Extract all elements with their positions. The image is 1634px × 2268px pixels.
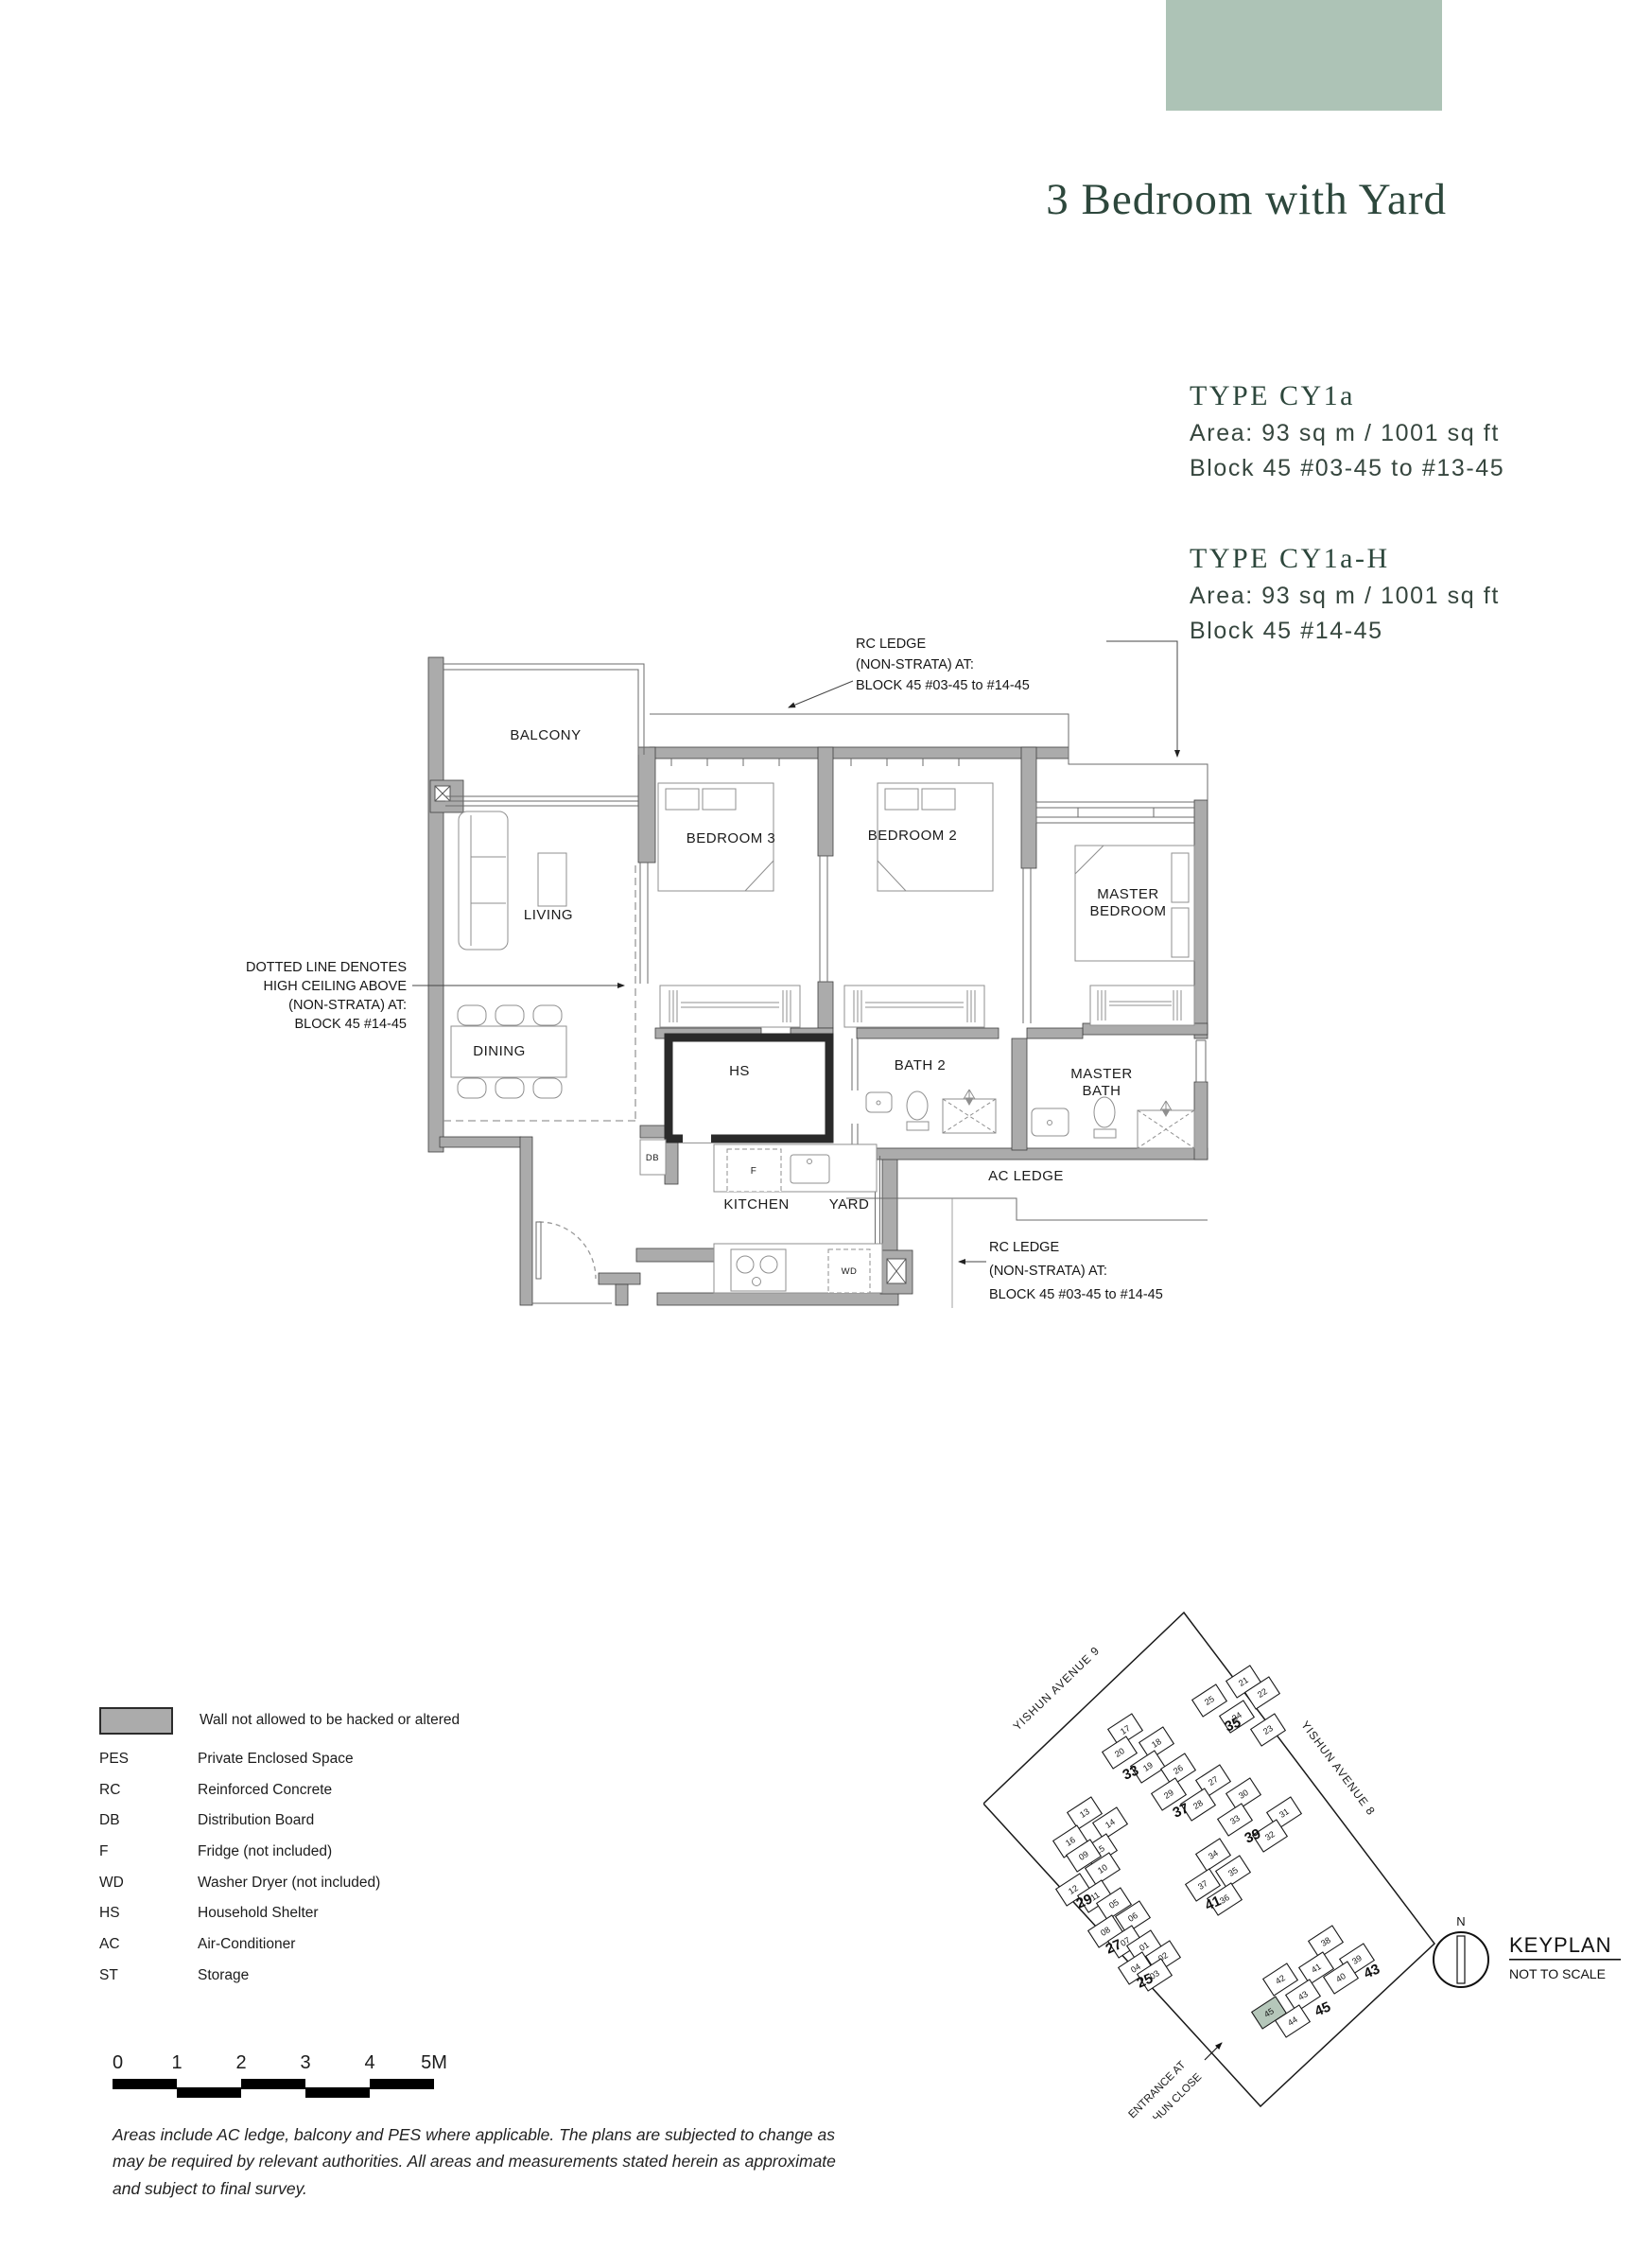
label-master-bath: BATH — [1083, 1083, 1121, 1099]
keyplan-unit-38: 38 — [1309, 1926, 1344, 1958]
scale-segment — [305, 2087, 370, 2098]
keyplan-subtitle: NOT TO SCALE — [1509, 1966, 1606, 1981]
sofa — [459, 811, 508, 950]
legend-key: PES — [99, 1751, 198, 1768]
legend-desc: Private Enclosed Space — [198, 1751, 354, 1768]
legend-row: STStorage — [99, 1967, 460, 1998]
keyplan-cluster-41: 3435373641 — [1186, 1839, 1251, 1915]
legend-desc: Reinforced Concrete — [198, 1782, 332, 1799]
wardrobe-master — [1090, 986, 1194, 1025]
keyplan-block-label-45: 45 — [1312, 1998, 1333, 2019]
floor-plan: BALCONY LIVING DINING BEDROOM 3 BEDROOM … — [227, 577, 1267, 1362]
legend-desc: Washer Dryer (not included) — [198, 1875, 380, 1892]
keyplan-cluster-35: 212225242335 — [1192, 1666, 1286, 1746]
scale-label: 1 — [171, 2052, 182, 2074]
keyplan-title-block: KEYPLAN NOT TO SCALE — [1509, 1933, 1621, 1981]
legend-row: DBDistribution Board — [99, 1812, 460, 1843]
scale-segment — [241, 2079, 305, 2089]
compass: N — [1434, 1914, 1488, 1987]
legend-row: PESPrivate Enclosed Space — [99, 1751, 460, 1782]
label-db: DB — [646, 1153, 659, 1163]
label-bedroom3: BEDROOM 3 — [687, 830, 776, 846]
svg-text:(NON-STRATA) AT:: (NON-STRATA) AT: — [989, 1264, 1107, 1279]
keyplan-unit-23: 23 — [1251, 1714, 1286, 1746]
label-master-bath: MASTER — [1070, 1066, 1133, 1082]
page-title: 3 Bedroom with Yard — [1046, 174, 1447, 225]
svg-text:RC LEDGE: RC LEDGE — [989, 1240, 1059, 1255]
keyplan-unit-30: 30 — [1226, 1778, 1261, 1810]
svg-text:BLOCK 45 #14-45: BLOCK 45 #14-45 — [295, 1017, 408, 1032]
svg-text:(NON-STRATA) AT:: (NON-STRATA) AT: — [856, 657, 974, 672]
scale-bar: 0 1 2 3 4 5M — [113, 2052, 453, 2105]
entry-door-leaf — [536, 1222, 541, 1279]
legend-key: ST — [99, 1967, 198, 1984]
street-label-yishun-ave-9: YISHUN AVENUE 9 — [1011, 1644, 1103, 1733]
label-bedroom2: BEDROOM 2 — [868, 828, 958, 844]
page: 3 Bedroom with Yard TYPE CY1a Area: 93 s… — [0, 0, 1634, 2268]
label-yard: YARD — [829, 1196, 870, 1213]
legend-key: HS — [99, 1905, 198, 1922]
label-ac-ledge: AC LEDGE — [988, 1168, 1064, 1184]
accent-rectangle — [1166, 0, 1442, 111]
legend-desc: Storage — [198, 1967, 249, 1984]
street-label-yishun-ave-8: YISHUN AVENUE 8 — [1298, 1718, 1378, 1818]
legend: Wall not allowed to be hacked or altered… — [99, 1706, 460, 1998]
keyplan-cluster-39: 3031333239 — [1218, 1778, 1302, 1852]
legend-key: RC — [99, 1782, 198, 1799]
master-bath-toilet — [1094, 1097, 1115, 1127]
svg-text:(NON-STRATA) AT:: (NON-STRATA) AT: — [288, 998, 407, 1013]
legend-row: WDWasher Dryer (not included) — [99, 1875, 460, 1906]
legend-row: HSHousehold Shelter — [99, 1905, 460, 1936]
type-cy1a-block: TYPE CY1a Area: 93 sq m / 1001 sq ft Blo… — [1190, 380, 1504, 482]
type-range: Block 45 #03-45 to #13-45 — [1190, 455, 1504, 482]
label-fridge: F — [751, 1166, 757, 1177]
keyplan-clusters: 2122252423351718201933262729283730313332… — [1053, 1666, 1382, 2037]
svg-text:BLOCK 45 #03-45 to #14-45: BLOCK 45 #03-45 to #14-45 — [856, 678, 1030, 693]
disclaimer: Areas include AC ledge, balcony and PES … — [113, 2121, 869, 2202]
scale-label: 3 — [300, 2052, 310, 2074]
entrance-label: ENTRANCE AT YISHUN CLOSE — [1124, 2043, 1222, 2119]
scale-label: 0 — [113, 2052, 123, 2074]
label-living: LIVING — [524, 907, 573, 923]
label-balcony: BALCONY — [510, 727, 581, 743]
svg-text:DOTTED LINE DENOTES: DOTTED LINE DENOTES — [246, 960, 407, 975]
keyplan: YISHUN AVENUE 9 YISHUN AVENUE 8 21222524… — [983, 1570, 1634, 2119]
bath2-fixtures — [866, 1090, 996, 1133]
label-master-bedroom: BEDROOM — [1089, 903, 1166, 919]
disclaimer-line: and subject to final survey. — [113, 2175, 869, 2202]
label-wd: WD — [842, 1266, 858, 1277]
svg-text:HIGH CEILING ABOVE: HIGH CEILING ABOVE — [264, 979, 408, 994]
label-hs: HS — [729, 1063, 750, 1079]
legend-wall-note: Wall not allowed to be hacked or altered — [200, 1712, 460, 1729]
coffee-table — [538, 853, 566, 906]
legend-key: WD — [99, 1875, 198, 1892]
legend-desc: Fridge (not included) — [198, 1843, 332, 1860]
entry-door-arc — [539, 1222, 596, 1279]
legend-row: ACAir-Conditioner — [99, 1936, 460, 1967]
scale-label: 2 — [235, 2052, 246, 2074]
label-dining: DINING — [473, 1043, 526, 1059]
legend-row: FFridge (not included) — [99, 1843, 460, 1875]
scale-segment — [177, 2087, 241, 2098]
label-bath2: BATH 2 — [895, 1057, 946, 1073]
legend-key: F — [99, 1843, 198, 1860]
keyplan-title: KEYPLAN — [1509, 1933, 1612, 1957]
north-label: N — [1456, 1914, 1465, 1928]
label-master-bedroom: MASTER — [1097, 886, 1159, 902]
legend-desc: Distribution Board — [198, 1812, 314, 1829]
wall-swatch — [99, 1707, 173, 1735]
scale-segment — [370, 2079, 434, 2089]
disclaimer-line: Areas include AC ledge, balcony and PES … — [113, 2121, 869, 2148]
legend-desc: Air-Conditioner — [198, 1936, 295, 1953]
compass-needle — [1457, 1936, 1465, 1983]
keyplan-unit-25: 25 — [1192, 1684, 1227, 1717]
plan-annotations: DOTTED LINE DENOTES HIGH CEILING ABOVE (… — [246, 637, 1177, 1302]
disclaimer-line: may be required by relevant authorities.… — [113, 2148, 869, 2174]
svg-text:BLOCK 45 #03-45 to #14-45: BLOCK 45 #03-45 to #14-45 — [989, 1287, 1163, 1302]
rc-ledge-top-annotation: RC LEDGE (NON-STRATA) AT: BLOCK 45 #03-4… — [789, 637, 1177, 757]
master-bath-fixtures — [1032, 1097, 1194, 1148]
wardrobe-bedroom3 — [660, 986, 800, 1027]
legend-key: DB — [99, 1812, 198, 1829]
type-name: TYPE CY1a-H — [1190, 543, 1500, 575]
scale-label: 5M — [421, 2052, 447, 2074]
bath2-toilet — [907, 1091, 928, 1120]
legend-key: AC — [99, 1936, 198, 1953]
keyplan-unit-26: 26 — [1161, 1753, 1196, 1786]
scale-label: 4 — [364, 2052, 374, 2074]
household-shelter — [669, 1038, 829, 1143]
legend-wall-row: Wall not allowed to be hacked or altered — [99, 1706, 460, 1735]
type-area: Area: 93 sq m / 1001 sq ft — [1190, 420, 1504, 447]
plan-walls — [428, 657, 1208, 1305]
svg-text:RC LEDGE: RC LEDGE — [856, 637, 926, 652]
wardrobe-bedroom2 — [844, 986, 984, 1027]
scale-segment — [113, 2079, 177, 2089]
legend-desc: Household Shelter — [198, 1905, 319, 1922]
legend-row: RCReinforced Concrete — [99, 1782, 460, 1813]
rc-ledge-bottom-annotation: RC LEDGE (NON-STRATA) AT: BLOCK 45 #03-4… — [959, 1240, 1163, 1302]
label-kitchen: KITCHEN — [723, 1196, 789, 1213]
type-name: TYPE CY1a — [1190, 380, 1504, 412]
